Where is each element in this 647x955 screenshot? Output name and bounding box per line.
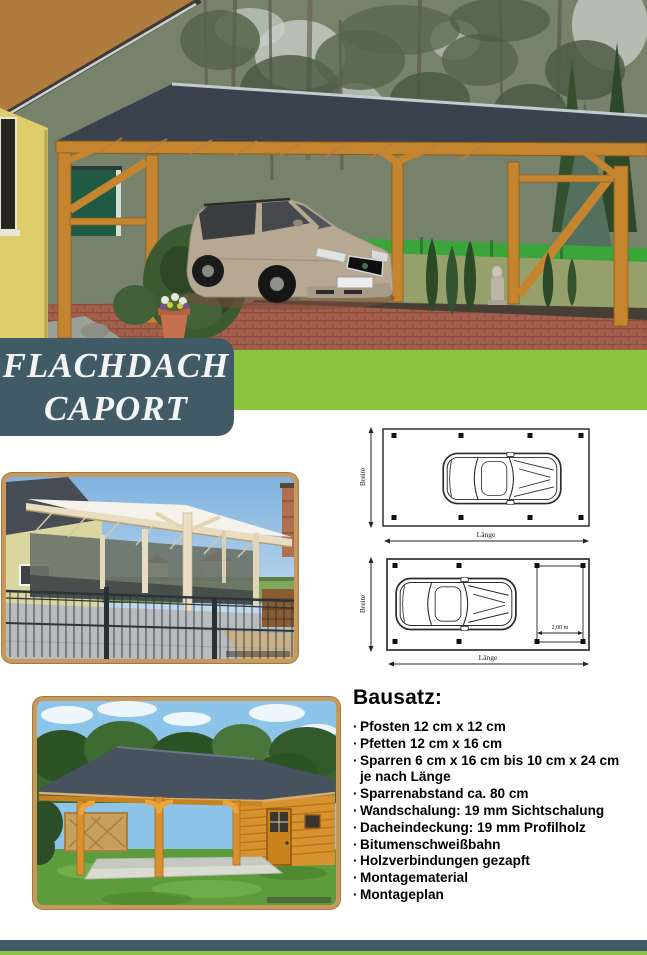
bullet-dot: · [353, 803, 360, 820]
laenge-label-1: Länge [477, 530, 496, 539]
title-line-1: FLACHDACH [3, 344, 230, 387]
carport-photo-light [2, 473, 298, 663]
bausatz-item-text: Montageplan [360, 887, 444, 904]
bausatz-item: ·Dacheindeckung: 19 mm Profilholz [353, 820, 645, 837]
bausatz-item-text: Pfetten 12 cm x 16 cm [360, 736, 502, 753]
watermark-smudge [267, 897, 331, 903]
bullet-dot: · [353, 820, 360, 837]
watermark-smudge [226, 651, 290, 657]
bullet-spacer [353, 769, 360, 786]
bausatz-item-text: Holzverbindungen gezapft [360, 853, 530, 870]
bausatz-item: ·Pfetten 12 cm x 16 cm [353, 736, 645, 753]
laenge-label-2: Länge [479, 653, 498, 662]
title-banner: FLACHDACH CAPORT [0, 338, 234, 436]
bullet-dot: · [353, 837, 360, 854]
bullet-dot: · [353, 853, 360, 870]
main-carport-photo [0, 0, 647, 350]
breite-label-2: Breite [358, 594, 367, 613]
bullet-dot: · [353, 887, 360, 904]
bullet-dot: · [353, 736, 360, 753]
bausatz-item: ·Montagematerial [353, 870, 645, 887]
footer-bar-green [0, 951, 647, 955]
bausatz-item: ·Sparrenabstand ca. 80 cm [353, 786, 645, 803]
bausatz-item: ·Sparren 6 cm x 16 cm bis 10 cm x 24 cm [353, 753, 645, 770]
footer-bar-dark [0, 940, 647, 951]
car-top-view-icon [396, 577, 516, 631]
bausatz-item-continuation: je nach Länge [353, 769, 645, 786]
car-top-view-icon [443, 452, 561, 505]
storage-width-label: 2,00 m [552, 625, 569, 631]
bausatz-item-text: Bitumenschweißbahn [360, 837, 500, 854]
floorplan-single: Breite Länge [358, 427, 589, 544]
bausatz-item-text: Wandschalung: 19 mm Sichtschalung [360, 803, 604, 820]
bausatz-item: ·Bitumenschweißbahn [353, 837, 645, 854]
title-line-2: CAPORT [44, 387, 188, 430]
bausatz-item-text: je nach Länge [360, 769, 451, 786]
floorplan-with-storage: 2,00 m Breite Länge [358, 557, 589, 667]
bullet-dot: · [353, 870, 360, 887]
bausatz-item: ·Montageplan [353, 887, 645, 904]
bausatz-item-text: Sparrenabstand ca. 80 cm [360, 786, 529, 803]
bausatz-list: ·Pfosten 12 cm x 12 cm ·Pfetten 12 cm x … [353, 719, 645, 904]
page: FLACHDACH CAPORT [0, 0, 647, 955]
shed-window [305, 815, 320, 828]
carport-photo-shed [33, 697, 340, 909]
bausatz-item: ·Wandschalung: 19 mm Sichtschalung [353, 803, 645, 820]
bausatz-item-text: Dacheindeckung: 19 mm Profilholz [360, 820, 586, 837]
bausatz-section: Bausatz: ·Pfosten 12 cm x 12 cm ·Pfetten… [353, 686, 645, 904]
bausatz-item-text: Pfosten 12 cm x 12 cm [360, 719, 506, 736]
bausatz-item-text: Montagematerial [360, 870, 468, 887]
breite-label-1: Breite [358, 467, 367, 486]
bausatz-item: ·Pfosten 12 cm x 12 cm [353, 719, 645, 736]
privacy-fence [65, 813, 127, 851]
bausatz-item: ·Holzverbindungen gezapft [353, 853, 645, 870]
bullet-dot: · [353, 786, 360, 803]
bullet-dot: · [353, 719, 360, 736]
bausatz-item-text: Sparren 6 cm x 16 cm bis 10 cm x 24 cm [360, 753, 619, 770]
carport-floorplan-diagrams: Breite Länge 2,00 m [352, 422, 647, 688]
bausatz-heading: Bausatz: [353, 686, 645, 710]
bullet-dot: · [353, 753, 360, 770]
